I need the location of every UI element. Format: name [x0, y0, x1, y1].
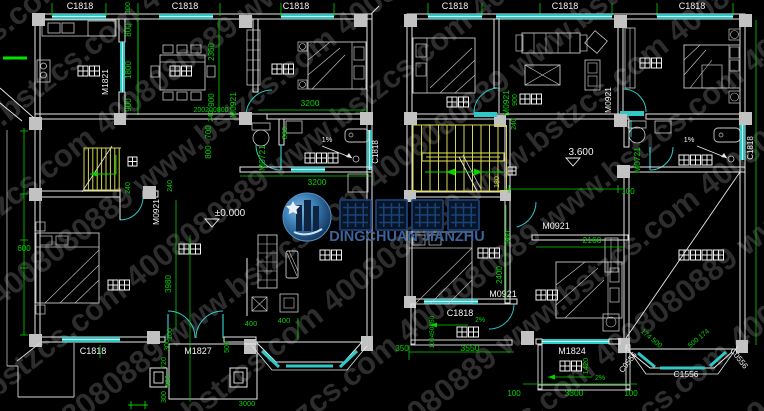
svg-text:C1818: C1818 — [172, 1, 199, 11]
svg-text:100: 100 — [624, 389, 638, 398]
svg-text:240: 240 — [511, 118, 518, 130]
svg-text:240: 240 — [167, 180, 174, 192]
svg-text:100: 100 — [125, 2, 132, 14]
svg-text:100: 100 — [167, 328, 174, 340]
svg-text:3980: 3980 — [164, 275, 173, 293]
svg-text:240: 240 — [125, 182, 132, 194]
svg-text:C1556: C1556 — [673, 369, 698, 379]
svg-text:2160: 2160 — [583, 235, 602, 245]
svg-text:200200800: 200200800 — [193, 107, 228, 114]
svg-text:C1818: C1818 — [552, 1, 579, 11]
svg-text:3550: 3550 — [461, 343, 480, 353]
svg-text:C1818: C1818 — [371, 140, 380, 164]
svg-text:300: 300 — [164, 339, 171, 351]
svg-text:DINGCHUAN JIANZHU: DINGCHUAN JIANZHU — [329, 229, 484, 245]
svg-text:3300: 3300 — [565, 388, 584, 398]
svg-text:800: 800 — [204, 145, 213, 159]
svg-text:1800: 1800 — [124, 61, 133, 79]
svg-text:900: 900 — [207, 93, 216, 107]
svg-text:100: 100 — [507, 389, 521, 398]
svg-text:M0921: M0921 — [228, 92, 238, 118]
svg-text:M1827: M1827 — [184, 346, 212, 356]
svg-text:1%: 1% — [684, 135, 695, 144]
svg-text:400: 400 — [278, 316, 291, 325]
svg-text:2%: 2% — [595, 375, 605, 382]
svg-text:3000: 3000 — [239, 399, 256, 408]
svg-text:2%: 2% — [475, 317, 485, 324]
svg-text:720: 720 — [161, 357, 168, 369]
svg-text:M0721: M0721 — [257, 145, 267, 171]
svg-text:3.600: 3.600 — [568, 147, 593, 158]
svg-text:2360: 2360 — [207, 43, 216, 61]
svg-text:1%: 1% — [322, 135, 333, 144]
svg-text:M0921: M0921 — [151, 199, 161, 225]
svg-text:300: 300 — [161, 391, 168, 403]
svg-text:180: 180 — [494, 176, 501, 188]
svg-text:900: 900 — [512, 94, 519, 106]
svg-text:800: 800 — [124, 23, 133, 37]
svg-text:500: 500 — [224, 341, 231, 353]
svg-text:±0.000: ±0.000 — [215, 208, 246, 219]
svg-text:C1818: C1818 — [67, 1, 94, 11]
svg-text:860: 860 — [280, 127, 289, 140]
svg-text:C1818: C1818 — [442, 1, 469, 11]
svg-text:M0921: M0921 — [501, 90, 511, 116]
svg-text:M0921: M0921 — [542, 221, 570, 231]
svg-text:M0921: M0921 — [489, 289, 517, 299]
svg-text:C1818: C1818 — [679, 1, 706, 11]
svg-text:1420: 1420 — [581, 358, 590, 375]
svg-text:350: 350 — [395, 344, 409, 353]
svg-text:100: 100 — [621, 187, 635, 196]
svg-text:3200: 3200 — [301, 98, 320, 108]
svg-text:500: 500 — [165, 375, 172, 387]
svg-text:100450850: 100450850 — [429, 315, 436, 348]
svg-text:C1818: C1818 — [746, 136, 755, 160]
svg-text:C1818: C1818 — [80, 346, 107, 356]
svg-text:M1824: M1824 — [558, 346, 586, 356]
svg-text:C1818: C1818 — [447, 308, 474, 318]
svg-text:360: 360 — [503, 231, 512, 244]
svg-text:700: 700 — [204, 125, 213, 139]
svg-text:M0921: M0921 — [603, 87, 613, 113]
svg-text:400: 400 — [245, 319, 258, 328]
svg-text:900: 900 — [124, 98, 133, 112]
svg-text:3200: 3200 — [308, 177, 327, 187]
svg-text:2400: 2400 — [495, 266, 504, 284]
svg-text:M1821: M1821 — [100, 69, 110, 95]
svg-text:C1818: C1818 — [283, 1, 310, 11]
svg-text:M0721: M0721 — [632, 147, 642, 173]
